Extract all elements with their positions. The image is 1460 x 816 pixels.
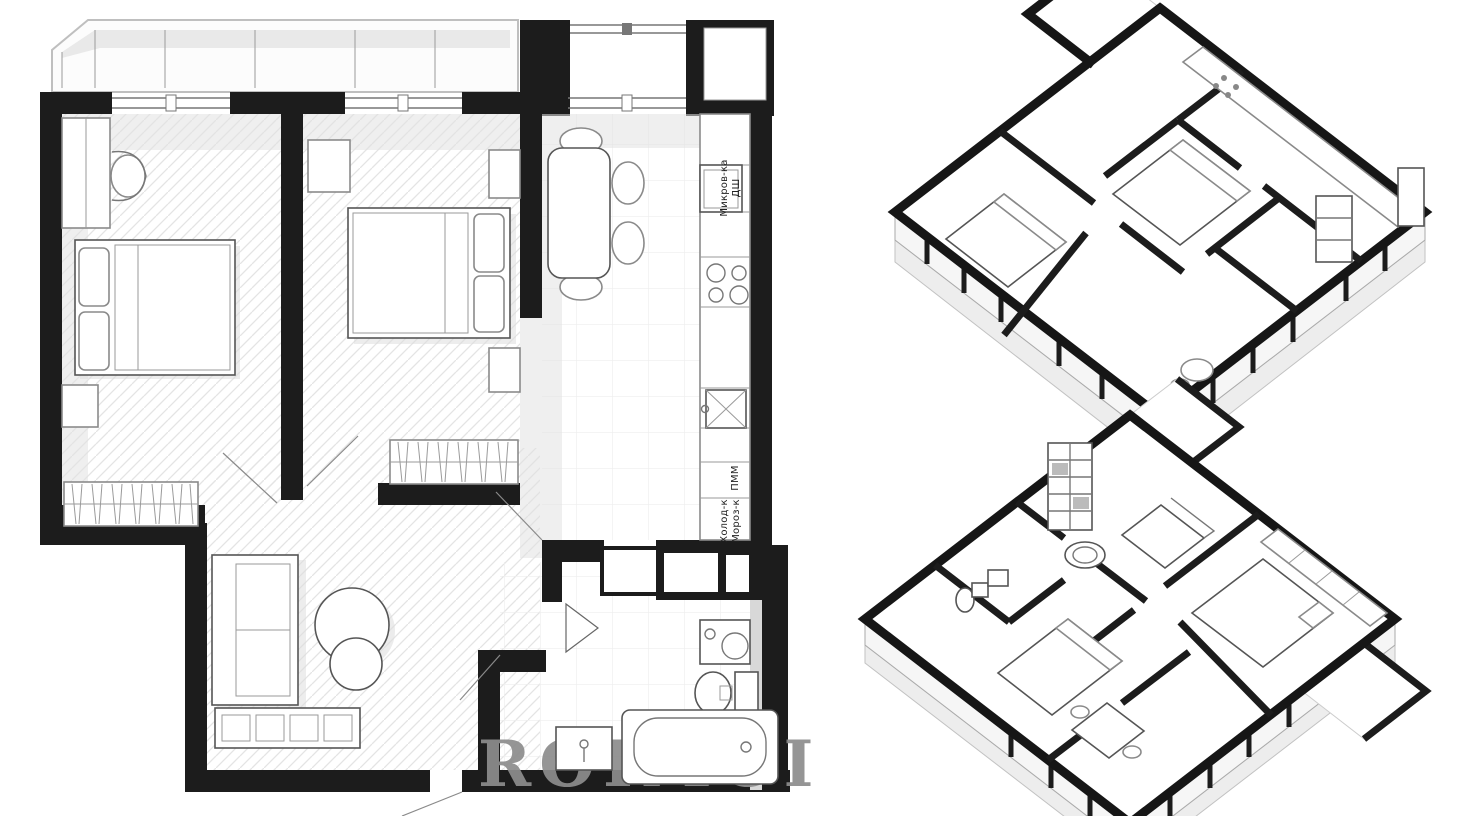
shaft-box — [704, 28, 766, 100]
wardrobe-hatched-2 — [390, 440, 518, 484]
floor-plan-sheet: Микров-ка ДШ ПММ Холод-к Мороз-к ROIM — [0, 0, 1460, 816]
stool-a — [1181, 359, 1213, 381]
windows — [112, 95, 686, 111]
sink — [702, 390, 747, 428]
bed2-pillow-1 — [474, 214, 504, 272]
nightstand2-top — [489, 150, 520, 198]
balcony-kitchen — [520, 20, 774, 116]
iso-view-bottom — [865, 379, 1426, 816]
wardrobe-hatched-1 — [64, 482, 198, 526]
window-kitchen — [568, 95, 686, 111]
shaft-inset-2 — [726, 555, 749, 592]
dresser — [308, 140, 350, 192]
dining-table — [548, 148, 610, 278]
shaft-inset-1 — [664, 553, 718, 592]
toilet — [695, 672, 758, 714]
label-fridge-1: Холод-к — [719, 499, 730, 542]
coffee-table-small — [330, 638, 382, 690]
bed1-pillow-2 — [79, 312, 109, 370]
nightstand2-bottom — [489, 348, 520, 392]
tall-cabinet-a — [1398, 168, 1424, 226]
tv-stand — [215, 708, 360, 748]
chair-b-2 — [1123, 746, 1141, 758]
bathtub — [622, 710, 778, 784]
bookshelf-b — [1048, 443, 1092, 530]
bath-sink — [556, 727, 612, 770]
window-bedroom1 — [112, 95, 230, 111]
label-microwave-2: ДШ — [731, 179, 742, 198]
window-tick — [622, 23, 632, 35]
balcony-left — [52, 20, 518, 92]
plan-2d: Микров-ка ДШ ПММ Холод-к Мороз-к ROIM — [40, 20, 821, 816]
chair-right-1 — [612, 162, 644, 204]
label-fridge-2: Мороз-к — [731, 499, 742, 543]
label-dishwasher: ПММ — [730, 465, 741, 490]
bed2-pillow-2 — [474, 276, 504, 332]
label-microwave-1: Микров-ка — [719, 159, 730, 216]
washing-machine — [700, 620, 750, 664]
chair-b-1 — [1071, 706, 1089, 718]
niche-box — [602, 548, 658, 594]
nightstand1 — [62, 385, 98, 427]
bed1-pillow-1 — [79, 248, 109, 306]
drawing-canvas: Микров-ка ДШ ПММ Холод-к Мороз-к ROIM — [0, 0, 1460, 816]
chair-right-2 — [612, 222, 644, 264]
sink-b — [988, 570, 1008, 586]
appliance-stack-a — [1316, 196, 1352, 262]
round-table-b — [1065, 542, 1105, 568]
window-bedroom2 — [345, 95, 462, 111]
